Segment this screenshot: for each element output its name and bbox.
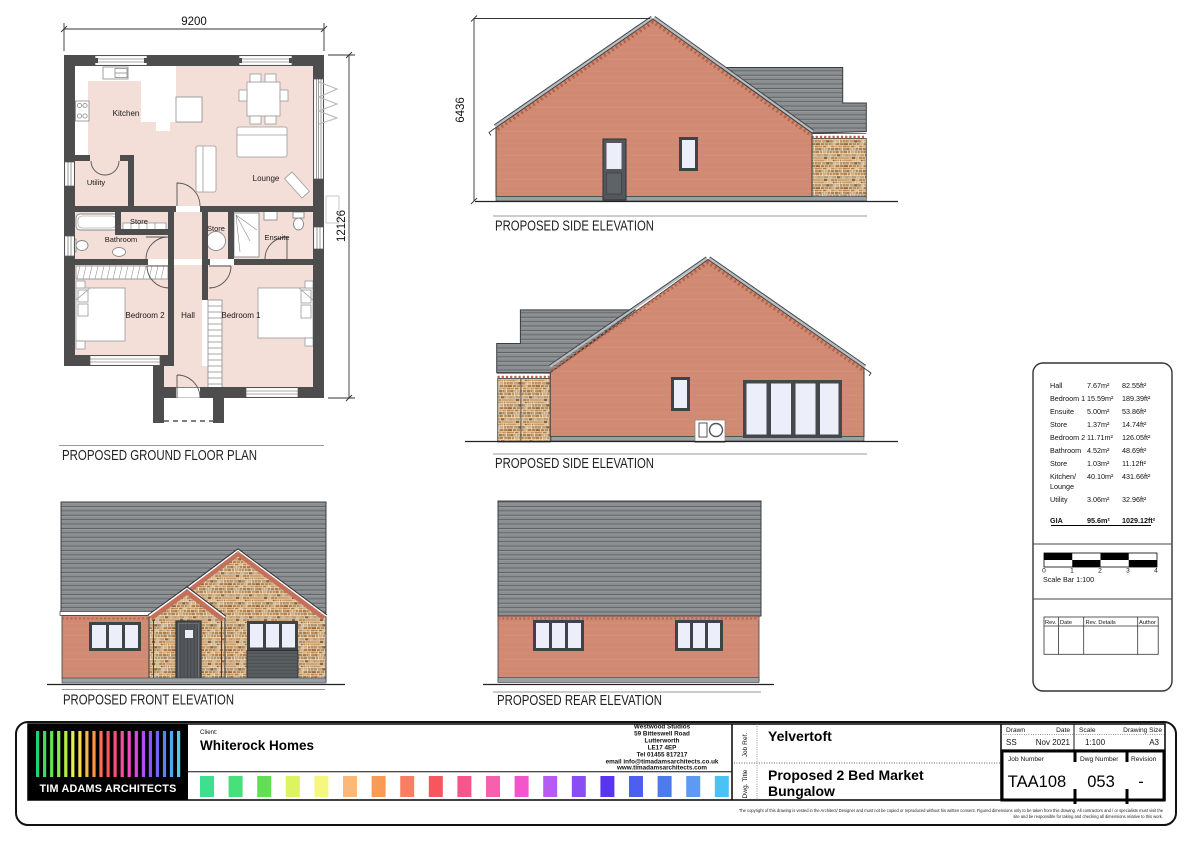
svg-text:TIM ADAMS ARCHITECTS: TIM ADAMS ARCHITECTS: [40, 783, 177, 795]
svg-text:Scale: Scale: [1079, 727, 1096, 734]
svg-text:PROPOSED SIDE ELEVATION: PROPOSED SIDE ELEVATION: [495, 218, 654, 235]
svg-text:Store: Store: [130, 217, 148, 226]
svg-text:SS: SS: [1006, 738, 1017, 747]
svg-text:Hall: Hall: [181, 311, 195, 320]
svg-text:Nov 2021: Nov 2021: [1036, 738, 1071, 747]
svg-text:Bathroom: Bathroom: [1050, 446, 1081, 455]
svg-text:126.05ft²: 126.05ft²: [1122, 433, 1151, 442]
svg-text:053: 053: [1087, 773, 1115, 791]
svg-text:Lounge: Lounge: [253, 174, 280, 183]
svg-text:Bathroom: Bathroom: [105, 235, 138, 244]
svg-text:site and be responsible for ta: site and be responsible for taking and c…: [1013, 814, 1163, 819]
svg-text:3.06m²: 3.06m²: [1087, 495, 1110, 504]
svg-text:1029.12ft²: 1029.12ft²: [1122, 516, 1156, 525]
svg-text:PROPOSED FRONT ELEVATION: PROPOSED FRONT ELEVATION: [63, 692, 234, 709]
svg-text:Drawn: Drawn: [1006, 727, 1025, 734]
svg-text:Ensuite: Ensuite: [1050, 407, 1074, 416]
svg-text:14.74ft²: 14.74ft²: [1122, 420, 1147, 429]
svg-text:Whiterock Homes: Whiterock Homes: [200, 738, 314, 753]
svg-text:Bedroom 1: Bedroom 1: [1050, 394, 1085, 403]
svg-text:Store: Store: [207, 224, 225, 233]
svg-text:LE17 4EP: LE17 4EP: [648, 745, 677, 752]
svg-text:Store: Store: [1050, 459, 1067, 468]
svg-text:Proposed 2 Bed Market: Proposed 2 Bed Market: [768, 767, 924, 783]
svg-text:Author: Author: [1139, 620, 1156, 626]
svg-text:PROPOSED SIDE ELEVATION: PROPOSED SIDE ELEVATION: [495, 455, 654, 472]
svg-text:Dwg Number: Dwg Number: [1080, 756, 1119, 763]
svg-text:1: 1: [1070, 568, 1074, 575]
svg-text:1.03m²: 1.03m²: [1087, 459, 1110, 468]
svg-text:Yelvertoft: Yelvertoft: [768, 728, 832, 744]
svg-text:Date: Date: [1060, 620, 1072, 626]
svg-text:0: 0: [1042, 568, 1046, 575]
svg-text:11.71m²: 11.71m²: [1087, 433, 1113, 442]
svg-text:Tel 01455 817217: Tel 01455 817217: [637, 752, 688, 759]
svg-text:The copyright of this drawing: The copyright of this drawing is vested …: [739, 808, 1164, 813]
svg-text:Client:: Client:: [200, 729, 218, 736]
svg-text:9200: 9200: [181, 16, 207, 28]
svg-text:5.00m²: 5.00m²: [1087, 407, 1110, 416]
svg-text:15.59m²: 15.59m²: [1087, 394, 1114, 403]
svg-text:1:100: 1:100: [1085, 738, 1106, 747]
svg-text:95.6m²: 95.6m²: [1087, 516, 1110, 525]
svg-text:11.12ft²: 11.12ft²: [1122, 459, 1146, 468]
svg-text:Dwg. Title: Dwg. Title: [742, 769, 749, 798]
svg-text:-: -: [1138, 773, 1144, 791]
svg-text:Lounge: Lounge: [1050, 482, 1074, 491]
svg-text:PROPOSED REAR ELEVATION: PROPOSED REAR ELEVATION: [497, 692, 662, 709]
svg-text:2: 2: [1098, 568, 1102, 575]
svg-text:Bedroom 2: Bedroom 2: [1050, 433, 1085, 442]
svg-text:Utility: Utility: [1050, 495, 1068, 504]
svg-text:48.69ft²: 48.69ft²: [1122, 446, 1147, 455]
svg-text:Date: Date: [1056, 727, 1070, 734]
svg-text:Westwood Studios: Westwood Studios: [634, 724, 691, 731]
svg-text:Job Ref.: Job Ref.: [742, 733, 749, 758]
svg-text:Lutterworth: Lutterworth: [645, 738, 680, 745]
svg-text:Revision: Revision: [1131, 756, 1157, 763]
svg-text:189.39ft²: 189.39ft²: [1122, 394, 1151, 403]
svg-text:Store: Store: [1050, 420, 1067, 429]
svg-text:Rev. Details: Rev. Details: [1086, 620, 1116, 626]
svg-text:Ensuite: Ensuite: [264, 233, 289, 242]
svg-text:1.37m²: 1.37m²: [1087, 420, 1110, 429]
svg-text:Kitchen/: Kitchen/: [1050, 472, 1076, 481]
svg-text:Job Number: Job Number: [1008, 756, 1045, 763]
svg-text:431.66ft²: 431.66ft²: [1122, 472, 1151, 481]
svg-text:40.10m²: 40.10m²: [1087, 472, 1114, 481]
svg-text:TAA108: TAA108: [1008, 773, 1066, 791]
svg-text:Hall: Hall: [1050, 381, 1063, 390]
svg-text:12126: 12126: [336, 210, 348, 242]
svg-text:7.67m²: 7.67m²: [1087, 381, 1110, 390]
svg-text:6436: 6436: [455, 97, 467, 123]
svg-text:4: 4: [1154, 568, 1158, 575]
svg-text:Bedroom 2: Bedroom 2: [125, 311, 165, 320]
svg-text:32.96ft²: 32.96ft²: [1122, 495, 1147, 504]
svg-text:Rev.: Rev.: [1045, 620, 1057, 626]
svg-text:Bedroom 1: Bedroom 1: [221, 311, 261, 320]
svg-text:Kitchen: Kitchen: [113, 109, 140, 118]
svg-text:53.86ft²: 53.86ft²: [1122, 407, 1147, 416]
svg-text:PROPOSED GROUND FLOOR PLAN: PROPOSED GROUND FLOOR PLAN: [62, 447, 257, 464]
svg-text:82.55ft²: 82.55ft²: [1122, 381, 1147, 390]
svg-text:Utility: Utility: [87, 178, 106, 187]
svg-text:Drawing Size: Drawing Size: [1123, 727, 1162, 734]
svg-text:3: 3: [1126, 568, 1130, 575]
svg-text:Scale Bar 1:100: Scale Bar 1:100: [1043, 575, 1094, 584]
svg-text:GIA: GIA: [1050, 516, 1063, 525]
svg-text:4.52m²: 4.52m²: [1087, 446, 1110, 455]
svg-text:A3: A3: [1149, 738, 1159, 747]
svg-text:59 Bitteswell Road: 59 Bitteswell Road: [634, 731, 690, 738]
svg-text:Bungalow: Bungalow: [768, 783, 835, 799]
svg-text:www.timadamsarchitects.com: www.timadamsarchitects.com: [616, 765, 707, 772]
